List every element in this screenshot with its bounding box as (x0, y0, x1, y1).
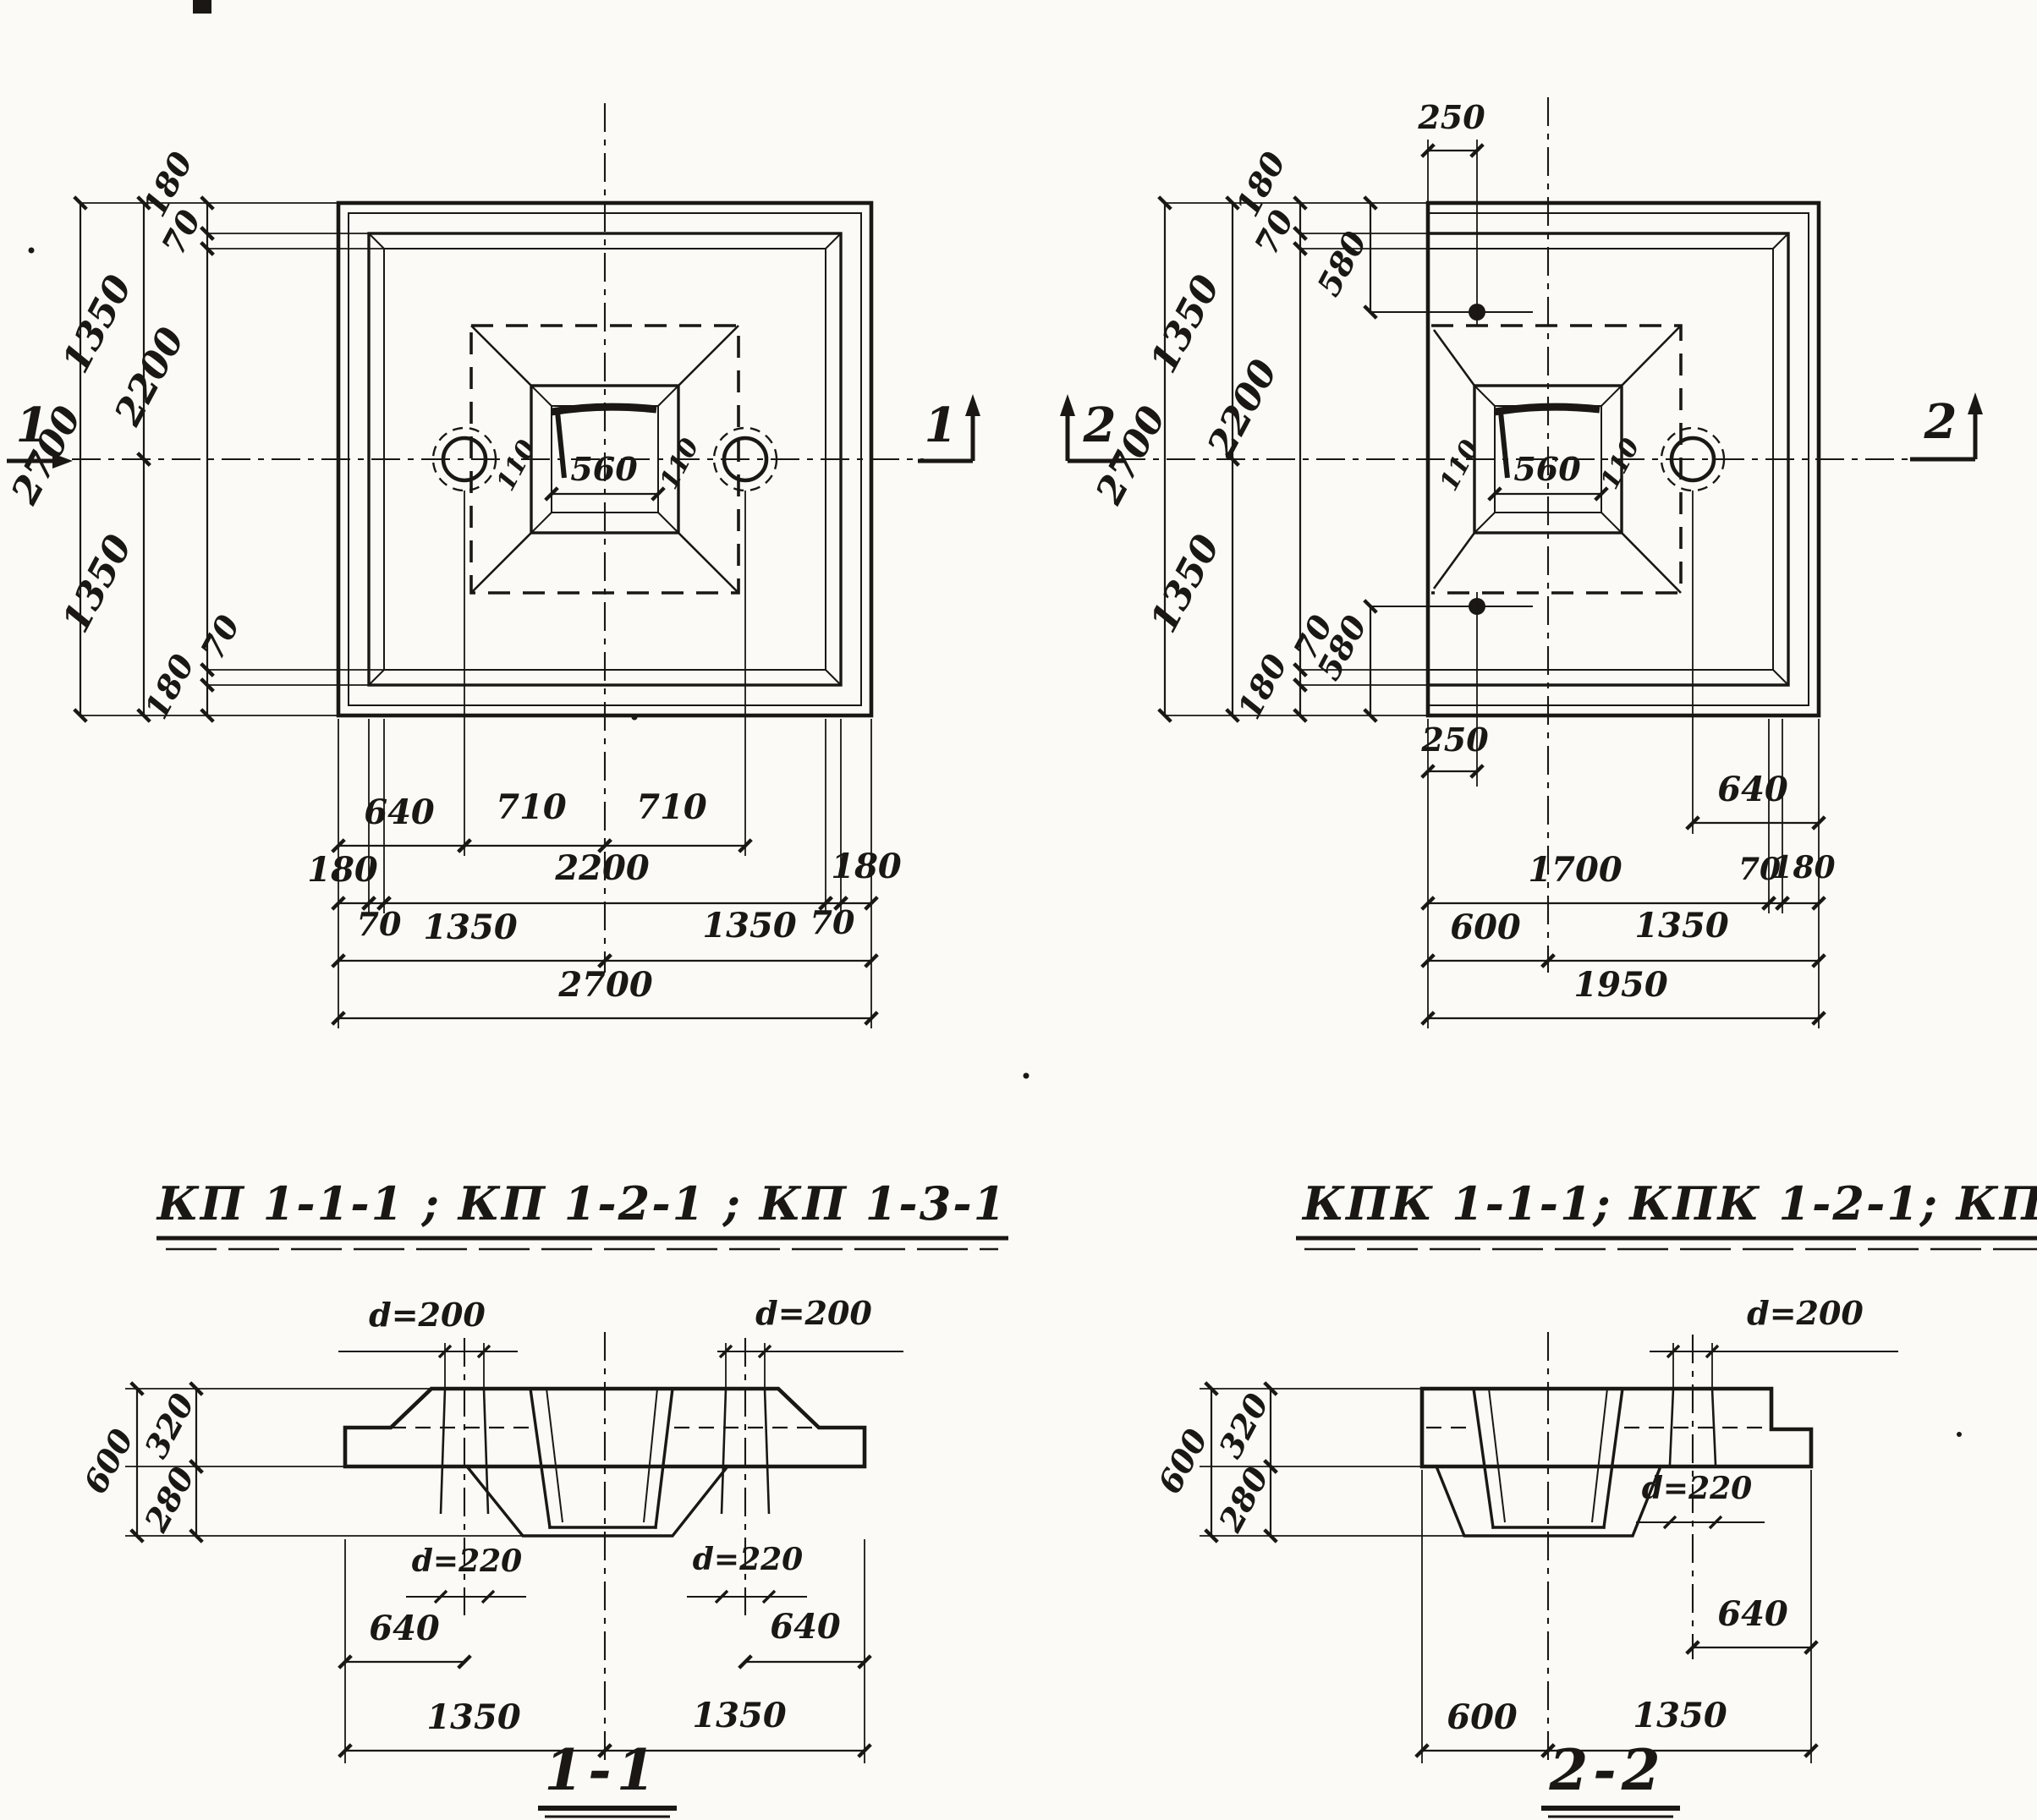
dim-label: 180 (1771, 850, 1835, 885)
slope-diagonal (1622, 326, 1681, 386)
dim-label: 180 (135, 145, 200, 223)
socket-bevel (1601, 513, 1622, 533)
dim-label: 2200 (106, 321, 193, 433)
dim-label: 180 (1230, 648, 1295, 726)
hole-wall (722, 1389, 726, 1514)
dim-label: 320 (1211, 1387, 1277, 1465)
plan-title: КП 1-1-1 ; КП 1-2-1 ; КП 1-3-1 (156, 1176, 1008, 1231)
scan-artifact (1957, 1432, 1962, 1437)
dim-label: 1700 (1528, 850, 1622, 890)
plan-kpk-left-dimensions: 2700 1350 1350 180 70 2200 70 180 580 58… (1087, 145, 1428, 726)
plan-kp: 110 560 110 2700 1350 1350 180 70 22 (3, 103, 1008, 1249)
blueprint-sheet: 110 560 110 2700 1350 1350 180 70 22 (0, 0, 2037, 1820)
corner-bevel (369, 670, 384, 685)
dim-label: 110 (1434, 436, 1485, 496)
dim-label: 640 (770, 1607, 841, 1647)
section-number: 1 (925, 397, 958, 453)
socket-wall (656, 1389, 673, 1527)
socket-bevel (1474, 386, 1495, 406)
dim-label: 1950 (1573, 965, 1667, 1005)
dim-label: 110 (654, 434, 705, 495)
slope-diagonal (678, 326, 738, 386)
plan-kpk-outline (1117, 97, 1910, 973)
drawing-canvas: 110 560 110 2700 1350 1350 180 70 22 (0, 0, 2037, 1820)
hole-wall (765, 1389, 769, 1514)
dim-label: 70 (193, 608, 248, 666)
socket-bevel (531, 386, 552, 406)
section-2-2: d=200 d=220 600 320 280 640 600 1350 2-2 (1150, 1294, 1898, 1817)
dim-label: 250 (1417, 98, 1485, 136)
dim-label: 1350 (692, 1696, 786, 1735)
section-number: 2 (1083, 397, 1117, 453)
dim-label: 2200 (554, 848, 649, 888)
plan-title: КПК 1-1-1; КПК 1-2-1; КПК 1-3-1 (1301, 1176, 2037, 1231)
socket-wall (1474, 1389, 1493, 1527)
dim-label: 710 (496, 787, 567, 827)
slope-diagonal (1622, 533, 1681, 593)
corner-bevel (1773, 670, 1788, 685)
dim-label: 110 (1595, 434, 1645, 495)
section-2-2-title: 2-2 (1541, 1737, 1680, 1817)
dim-label: 1350 (1142, 528, 1229, 639)
slope-diagonal (471, 533, 531, 593)
section-number: 2 (1924, 394, 1957, 450)
plan-kpk-socket-labels: 110 560 110 (1434, 434, 1645, 496)
hole-wall (484, 1389, 488, 1514)
hole-wall (1670, 1389, 1673, 1465)
dim-label: 280 (136, 1461, 202, 1539)
dim-label: 640 (1717, 770, 1788, 809)
corner-bevel (1773, 233, 1788, 249)
dim-label: 180 (1228, 145, 1293, 223)
socket-bevel (1601, 386, 1622, 406)
ink-smudge (557, 412, 564, 478)
corner-bevel (826, 670, 841, 685)
dim-label: 560 (570, 450, 638, 488)
socket-bevel (658, 513, 678, 533)
pedestal-profile (467, 1466, 727, 1536)
socket-wall-inner (644, 1389, 657, 1522)
dim-label: d=220 (412, 1543, 522, 1579)
hole-wall (441, 1389, 445, 1514)
dim-label: 1350 (423, 907, 517, 947)
dim-label: 2700 (557, 965, 652, 1005)
socket-wall (530, 1389, 550, 1527)
socket-wall (1604, 1389, 1622, 1527)
plan-kp-socket-labels: 110 560 110 (491, 434, 705, 496)
dim-label: d=200 (369, 1296, 486, 1334)
dim-label: 110 (491, 436, 541, 496)
socket-wall-inner (546, 1389, 563, 1522)
dim-label: 70 (357, 905, 402, 943)
dim-label: 600 (76, 1423, 141, 1500)
socket-bevel (658, 386, 678, 406)
corner-bevel (369, 233, 384, 249)
section-arrow (1968, 392, 1983, 414)
section-1-1-dims: d=200 d=200 600 320 280 d=220 d=220 (76, 1294, 903, 1763)
dim-label: 1350 (426, 1697, 520, 1737)
dim-label: 1350 (1634, 906, 1728, 946)
dim-label: 1350 (1633, 1696, 1727, 1735)
dim-label: 320 (137, 1387, 202, 1465)
dim-label: 1350 (702, 906, 796, 946)
scan-artifact (1024, 1073, 1029, 1079)
dim-label: 580 (1309, 225, 1375, 303)
section-arrow (1060, 394, 1075, 416)
section-title: 2-2 (1548, 1737, 1665, 1803)
dim-label: d=220 (1642, 1471, 1752, 1506)
dim-label: 180 (137, 648, 202, 726)
dim-label: 280 (1211, 1461, 1277, 1539)
dim-label: 250 (1420, 721, 1489, 759)
ink-smudge (1501, 412, 1507, 478)
socket-bevel (531, 513, 552, 533)
dim-label: 560 (1513, 450, 1581, 488)
dim-label: 180 (307, 850, 378, 890)
slope-diagonal (471, 326, 531, 386)
dim-label: 600 (1150, 1423, 1216, 1500)
scan-artifact (29, 248, 35, 254)
socket-wall-inner (1489, 1389, 1505, 1522)
scan-artifact (193, 0, 211, 14)
dim-label: 70 (810, 903, 855, 941)
plan-kpk-title: КПК 1-1-1; КПК 1-2-1; КПК 1-3-1 (1296, 1176, 2037, 1249)
socket-wall-inner (1592, 1389, 1607, 1522)
slope-diagonal (1434, 330, 1474, 386)
dim-label: 640 (364, 792, 435, 832)
dim-label: 2200 (1199, 353, 1286, 465)
dim-label: d=200 (755, 1294, 872, 1332)
dim-label: d=220 (693, 1542, 803, 1577)
dim-label: 600 (1447, 1697, 1518, 1737)
dim-label: d=200 (1747, 1294, 1864, 1332)
section-1-1-title: 1-1 (538, 1737, 677, 1817)
dim-label: 180 (831, 847, 902, 886)
section-title: 1-1 (544, 1737, 660, 1803)
dim-label: 710 (636, 787, 707, 827)
dim-label: 640 (1717, 1594, 1788, 1634)
section-number: 1 (16, 397, 49, 453)
dim-label: 1350 (54, 268, 141, 380)
dim-label: 600 (1450, 907, 1521, 947)
section-1-1: d=200 d=200 600 320 280 d=220 d=220 (76, 1294, 903, 1817)
dim-label: 1350 (1142, 268, 1229, 380)
slope-diagonal (1434, 533, 1474, 589)
corner-bevel (826, 233, 841, 249)
section-arrow (965, 394, 980, 416)
plan-kpk: 110 560 110 2700 1350 1350 180 (1060, 97, 2037, 1249)
scan-artifact (632, 715, 638, 721)
plan-kp-left-dimensions: 2700 1350 1350 180 70 2200 70 180 (3, 145, 384, 726)
slope-diagonal (678, 533, 738, 593)
plan-kp-title: КП 1-1-1 ; КП 1-2-1 ; КП 1-3-1 (156, 1176, 1008, 1249)
socket-bevel (1474, 513, 1495, 533)
dim-label: 640 (369, 1609, 440, 1648)
dim-label: 1350 (54, 528, 141, 639)
